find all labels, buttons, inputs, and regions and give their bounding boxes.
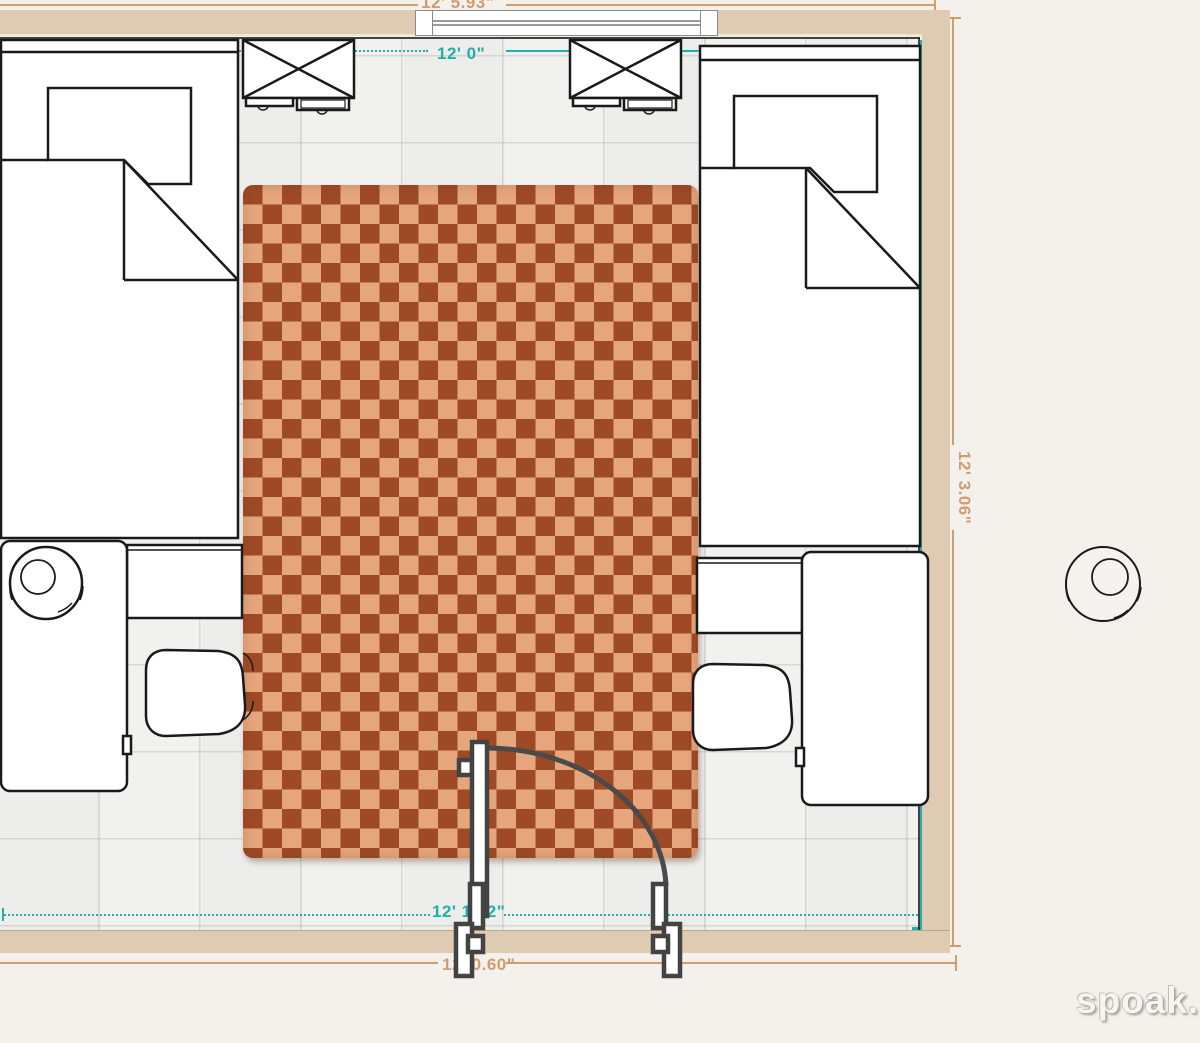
door-jamb-right bbox=[653, 884, 680, 976]
spoak-logo-watermark: spoak. bbox=[1076, 980, 1199, 1022]
floor-plan-canvas: 12' 5.93" 12' 0" 12' 3.06" 12' 1.52" 12'… bbox=[0, 0, 1200, 1043]
door[interactable] bbox=[456, 742, 680, 976]
door-layer bbox=[0, 0, 1200, 1043]
door-jamb-left bbox=[456, 884, 483, 976]
